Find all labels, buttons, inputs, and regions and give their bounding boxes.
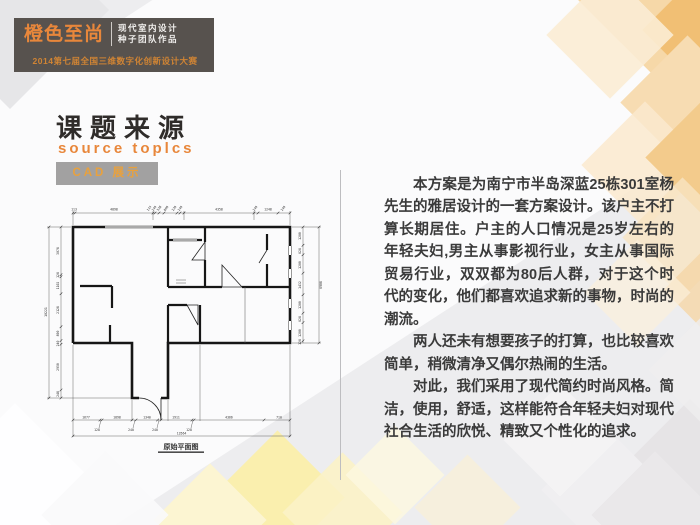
dim-label: 1677	[82, 415, 90, 419]
door-triangle	[192, 242, 205, 260]
banner-tagline-2: 种子团队作品	[118, 34, 178, 45]
dim-label: 240	[280, 205, 287, 212]
dim-right: 1200 628 1200 1432 1200 628 1200 128 690…	[298, 232, 323, 345]
team-banner: 橙色至尚 现代室内设计 种子团队作品 2014第七届全国三维数字化创新设计大赛	[14, 18, 214, 72]
dim-label: 1200	[298, 301, 302, 309]
dim-label: 240	[177, 205, 184, 212]
dim-label: 1102	[56, 282, 60, 290]
dim-label: 328	[156, 205, 163, 212]
dim-label: 240	[128, 428, 134, 432]
plan-caption-text: 原始平面图	[164, 442, 199, 451]
dim-label: 4358	[215, 208, 223, 212]
dim-label: 710	[276, 415, 282, 419]
dim-label: 248	[56, 391, 60, 397]
dim-label: 2950	[56, 363, 60, 371]
paragraph-2: 两人还未有想要孩子的打算，也比较喜欢简单，稍微清净又偶尔热闹的生活。	[384, 331, 674, 376]
dim-label: 128	[298, 339, 302, 345]
dim-label: 128	[186, 428, 192, 432]
walls	[73, 227, 290, 398]
dim-label: 890	[56, 331, 60, 337]
cad-badge: CAD 展示	[56, 162, 158, 185]
banner-divider	[111, 22, 112, 46]
dim-label: 1898	[113, 415, 121, 419]
interior-thin-lines	[176, 280, 245, 343]
dim-label: 3078	[56, 247, 60, 255]
door-triangle	[187, 305, 198, 325]
plan-caption-underline	[158, 452, 204, 453]
dim-label: 1432	[298, 281, 302, 289]
dim-ticks	[48, 212, 321, 438]
banner-taglines: 现代室内设计 种子团队作品	[118, 23, 178, 46]
dim-label: 13564	[177, 432, 187, 436]
dim-label: 128	[56, 272, 60, 278]
dim-left: 3078 128 1102 2128 890 240 2950 248 1022…	[44, 247, 60, 397]
banner-tagline-1: 现代室内设计	[118, 23, 178, 34]
page-subtitle: source toplcs	[58, 140, 195, 157]
dim-label: 628	[298, 248, 302, 254]
competition-name: 2014第七届全国三维数字化创新设计大赛	[24, 55, 206, 67]
dim-label: 1911	[172, 415, 180, 419]
dim-label: 2128	[56, 306, 60, 314]
door-triangle	[222, 265, 242, 287]
dim-label: 800	[163, 205, 170, 212]
presentation-slide: 橙色至尚 现代室内设计 种子团队作品 2014第七届全国三维数字化创新设计大赛 …	[0, 0, 700, 525]
dim-label: 10221	[44, 307, 48, 317]
dim-label: 1200	[298, 232, 302, 240]
windows	[105, 227, 293, 330]
dim-label: 4366	[225, 415, 233, 419]
dim-label: 240	[252, 205, 259, 212]
dim-label: 1340	[143, 415, 151, 419]
floor-plan-svg: 113 4898 114 240 328 800 220 240 4358 24…	[35, 190, 340, 462]
dim-label: 628	[298, 316, 302, 322]
project-description: 本方案是为南宁市半岛深蓝25栋301室杨先生的雅居设计的一套方案设计。该户主不打…	[384, 174, 674, 444]
dim-label: 113	[71, 208, 77, 212]
dim-label: 1200	[298, 261, 302, 269]
dim-top: 113 4898 114 240 328 800 220 240 4358 24…	[71, 205, 286, 212]
brand-name: 橙色至尚	[24, 25, 104, 44]
dim-label: 4898	[110, 208, 118, 212]
banner-top-row: 橙色至尚 现代室内设计 种子团队作品	[24, 22, 206, 46]
doors	[139, 242, 267, 420]
paragraph-3: 对此，我们采用了现代简约时尚风格。简洁，使用，舒适，这样能符合年轻夫妇对现代社合…	[384, 376, 674, 443]
door-leaf	[259, 250, 267, 263]
dim-label: 240	[56, 341, 60, 347]
dim-label: 128	[94, 428, 100, 432]
dim-label: 6908	[319, 281, 323, 289]
dim-label: 220	[171, 205, 178, 212]
dim-label: 240	[152, 428, 158, 432]
content-divider	[340, 170, 341, 480]
dim-label: 1248	[264, 208, 272, 212]
paragraph-1: 本方案是为南宁市半岛深蓝25栋301室杨先生的雅居设计的一套方案设计。该户主不打…	[384, 174, 674, 331]
plan-caption: 原始平面图	[158, 442, 204, 453]
dim-bottom: 1677 1898 1340 1911 4366 710 128 240 240…	[82, 415, 282, 435]
dim-label: 1200	[298, 329, 302, 337]
dim-lines	[47, 211, 321, 437]
